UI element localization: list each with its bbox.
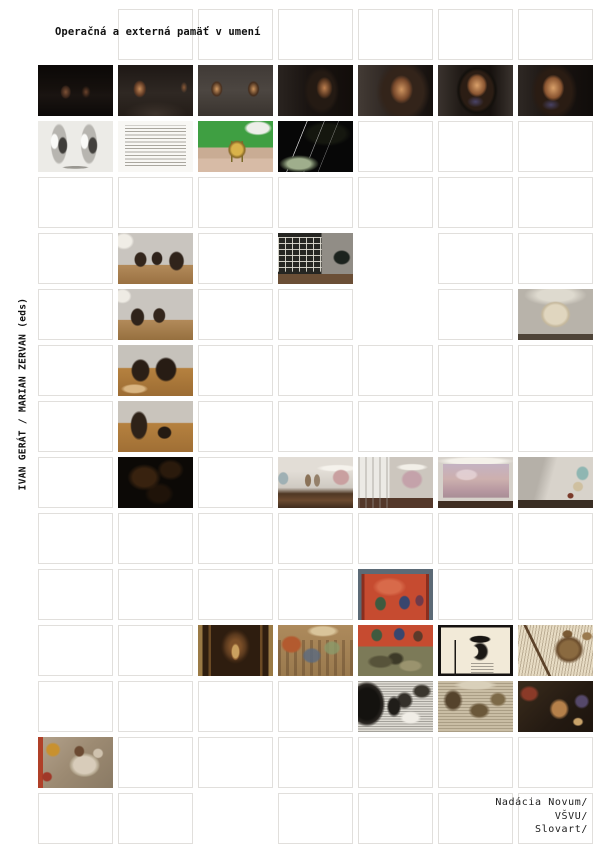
empty-cell xyxy=(118,625,193,676)
empty-cell xyxy=(518,9,593,60)
empty-cell xyxy=(38,345,113,396)
cover-title: Operačná a externá pamäť v umení xyxy=(55,26,261,38)
empty-cell xyxy=(518,737,593,788)
thumb-seq4 xyxy=(278,65,353,116)
empty-cell xyxy=(38,625,113,676)
empty-cell xyxy=(198,177,273,228)
empty-cell xyxy=(198,513,273,564)
empty-cell xyxy=(438,9,513,60)
thumb-gal3 xyxy=(438,457,513,508)
thumb-gal2 xyxy=(358,457,433,508)
empty-cell xyxy=(38,289,113,340)
empty-cell xyxy=(278,513,353,564)
empty-cell xyxy=(118,737,193,788)
empty-cell xyxy=(38,681,113,732)
empty-cell xyxy=(198,457,273,508)
empty-cell xyxy=(38,401,113,452)
empty-cell xyxy=(518,345,593,396)
thumb-bwphoto xyxy=(38,121,113,172)
empty-cell xyxy=(278,793,353,844)
empty-cell xyxy=(198,345,273,396)
thumb-engr1 xyxy=(358,681,433,732)
empty-cell xyxy=(518,121,593,172)
empty-cell xyxy=(358,345,433,396)
empty-cell xyxy=(198,737,273,788)
thumb-night xyxy=(278,121,353,172)
empty-cell xyxy=(38,569,113,620)
empty-cell xyxy=(118,513,193,564)
empty-cell xyxy=(518,569,593,620)
empty-cell xyxy=(518,177,593,228)
empty-cell xyxy=(198,569,273,620)
thumb-ms1 xyxy=(358,569,433,620)
book-cover: Operačná a externá pamäť v umení IVAN GE… xyxy=(0,0,605,855)
empty-cell xyxy=(118,569,193,620)
empty-cell xyxy=(438,569,513,620)
thumb-bookwall xyxy=(518,289,593,340)
thumb-woodcut2 xyxy=(518,625,593,676)
thumb-seq5 xyxy=(358,65,433,116)
thumb-ms2 xyxy=(358,625,433,676)
publisher-line: Nadácia Novum/ xyxy=(368,796,588,810)
empty-cell xyxy=(278,9,353,60)
empty-cell xyxy=(118,681,193,732)
thumb-altar xyxy=(198,625,273,676)
empty-cell xyxy=(38,177,113,228)
thumb-cab4 xyxy=(118,401,193,452)
thumb-darkpaint xyxy=(518,681,593,732)
empty-cell xyxy=(518,513,593,564)
thumb-seq2 xyxy=(118,65,193,116)
empty-cell xyxy=(438,289,513,340)
empty-cell xyxy=(38,793,113,844)
thumb-fresco2 xyxy=(38,737,113,788)
empty-cell xyxy=(38,457,113,508)
empty-cell xyxy=(198,289,273,340)
empty-cell xyxy=(518,233,593,284)
thumb-gal4 xyxy=(518,457,593,508)
thumb-fresco1 xyxy=(278,625,353,676)
empty-cell xyxy=(278,177,353,228)
empty-cell xyxy=(438,233,513,284)
empty-cell xyxy=(278,681,353,732)
thumb-lattice xyxy=(278,233,353,284)
thumb-greenwall xyxy=(198,121,273,172)
empty-cell xyxy=(278,289,353,340)
thumb-textpage xyxy=(118,121,193,172)
empty-cell xyxy=(38,233,113,284)
editors-side-text: IVAN GERÁT / MARIAN ZERVAN (eds) xyxy=(18,298,29,491)
thumb-seq7 xyxy=(518,65,593,116)
empty-cell xyxy=(38,513,113,564)
thumb-seq6 xyxy=(438,65,513,116)
thumb-engr2 xyxy=(438,681,513,732)
thumb-cab1 xyxy=(118,233,193,284)
empty-cell xyxy=(438,121,513,172)
empty-cell xyxy=(198,401,273,452)
empty-cell xyxy=(438,513,513,564)
empty-cell xyxy=(118,793,193,844)
thumb-gal1 xyxy=(278,457,353,508)
empty-cell xyxy=(358,9,433,60)
empty-cell xyxy=(438,737,513,788)
empty-cell xyxy=(358,401,433,452)
empty-cell xyxy=(118,177,193,228)
thumb-seq3 xyxy=(198,65,273,116)
thumb-cab3 xyxy=(118,345,193,396)
thumb-cab2 xyxy=(118,289,193,340)
thumb-darkdetail xyxy=(118,457,193,508)
empty-cell xyxy=(198,233,273,284)
empty-cell xyxy=(198,681,273,732)
empty-cell xyxy=(278,401,353,452)
empty-cell xyxy=(438,345,513,396)
thumb-seq1 xyxy=(38,65,113,116)
publisher-line: Slovart/ xyxy=(368,823,588,837)
thumb-woodcut1 xyxy=(438,625,513,676)
empty-cell xyxy=(438,401,513,452)
publisher-line: VŠVU/ xyxy=(368,810,588,824)
empty-cell xyxy=(358,513,433,564)
empty-cell xyxy=(358,177,433,228)
empty-cell xyxy=(438,177,513,228)
empty-cell xyxy=(358,121,433,172)
empty-cell xyxy=(278,737,353,788)
publishers-block: Nadácia Novum/ VŠVU/ Slovart/ xyxy=(368,796,588,837)
empty-cell xyxy=(358,737,433,788)
empty-cell xyxy=(278,345,353,396)
empty-cell xyxy=(278,569,353,620)
empty-cell xyxy=(518,401,593,452)
